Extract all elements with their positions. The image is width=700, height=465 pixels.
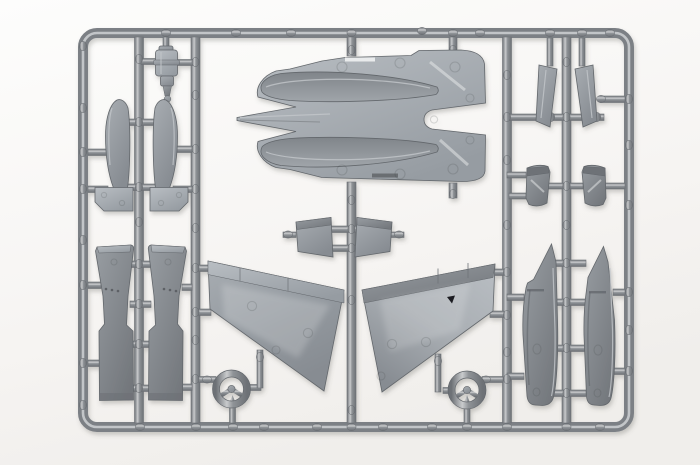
runner-d [562, 37, 571, 423]
runner-c [503, 37, 512, 423]
sprue-photo [0, 0, 700, 465]
part-wheel-right [448, 371, 486, 409]
runner-left-spine [135, 37, 144, 423]
sprue-photo-canvas [0, 0, 700, 465]
part-wheel-left [213, 370, 251, 408]
